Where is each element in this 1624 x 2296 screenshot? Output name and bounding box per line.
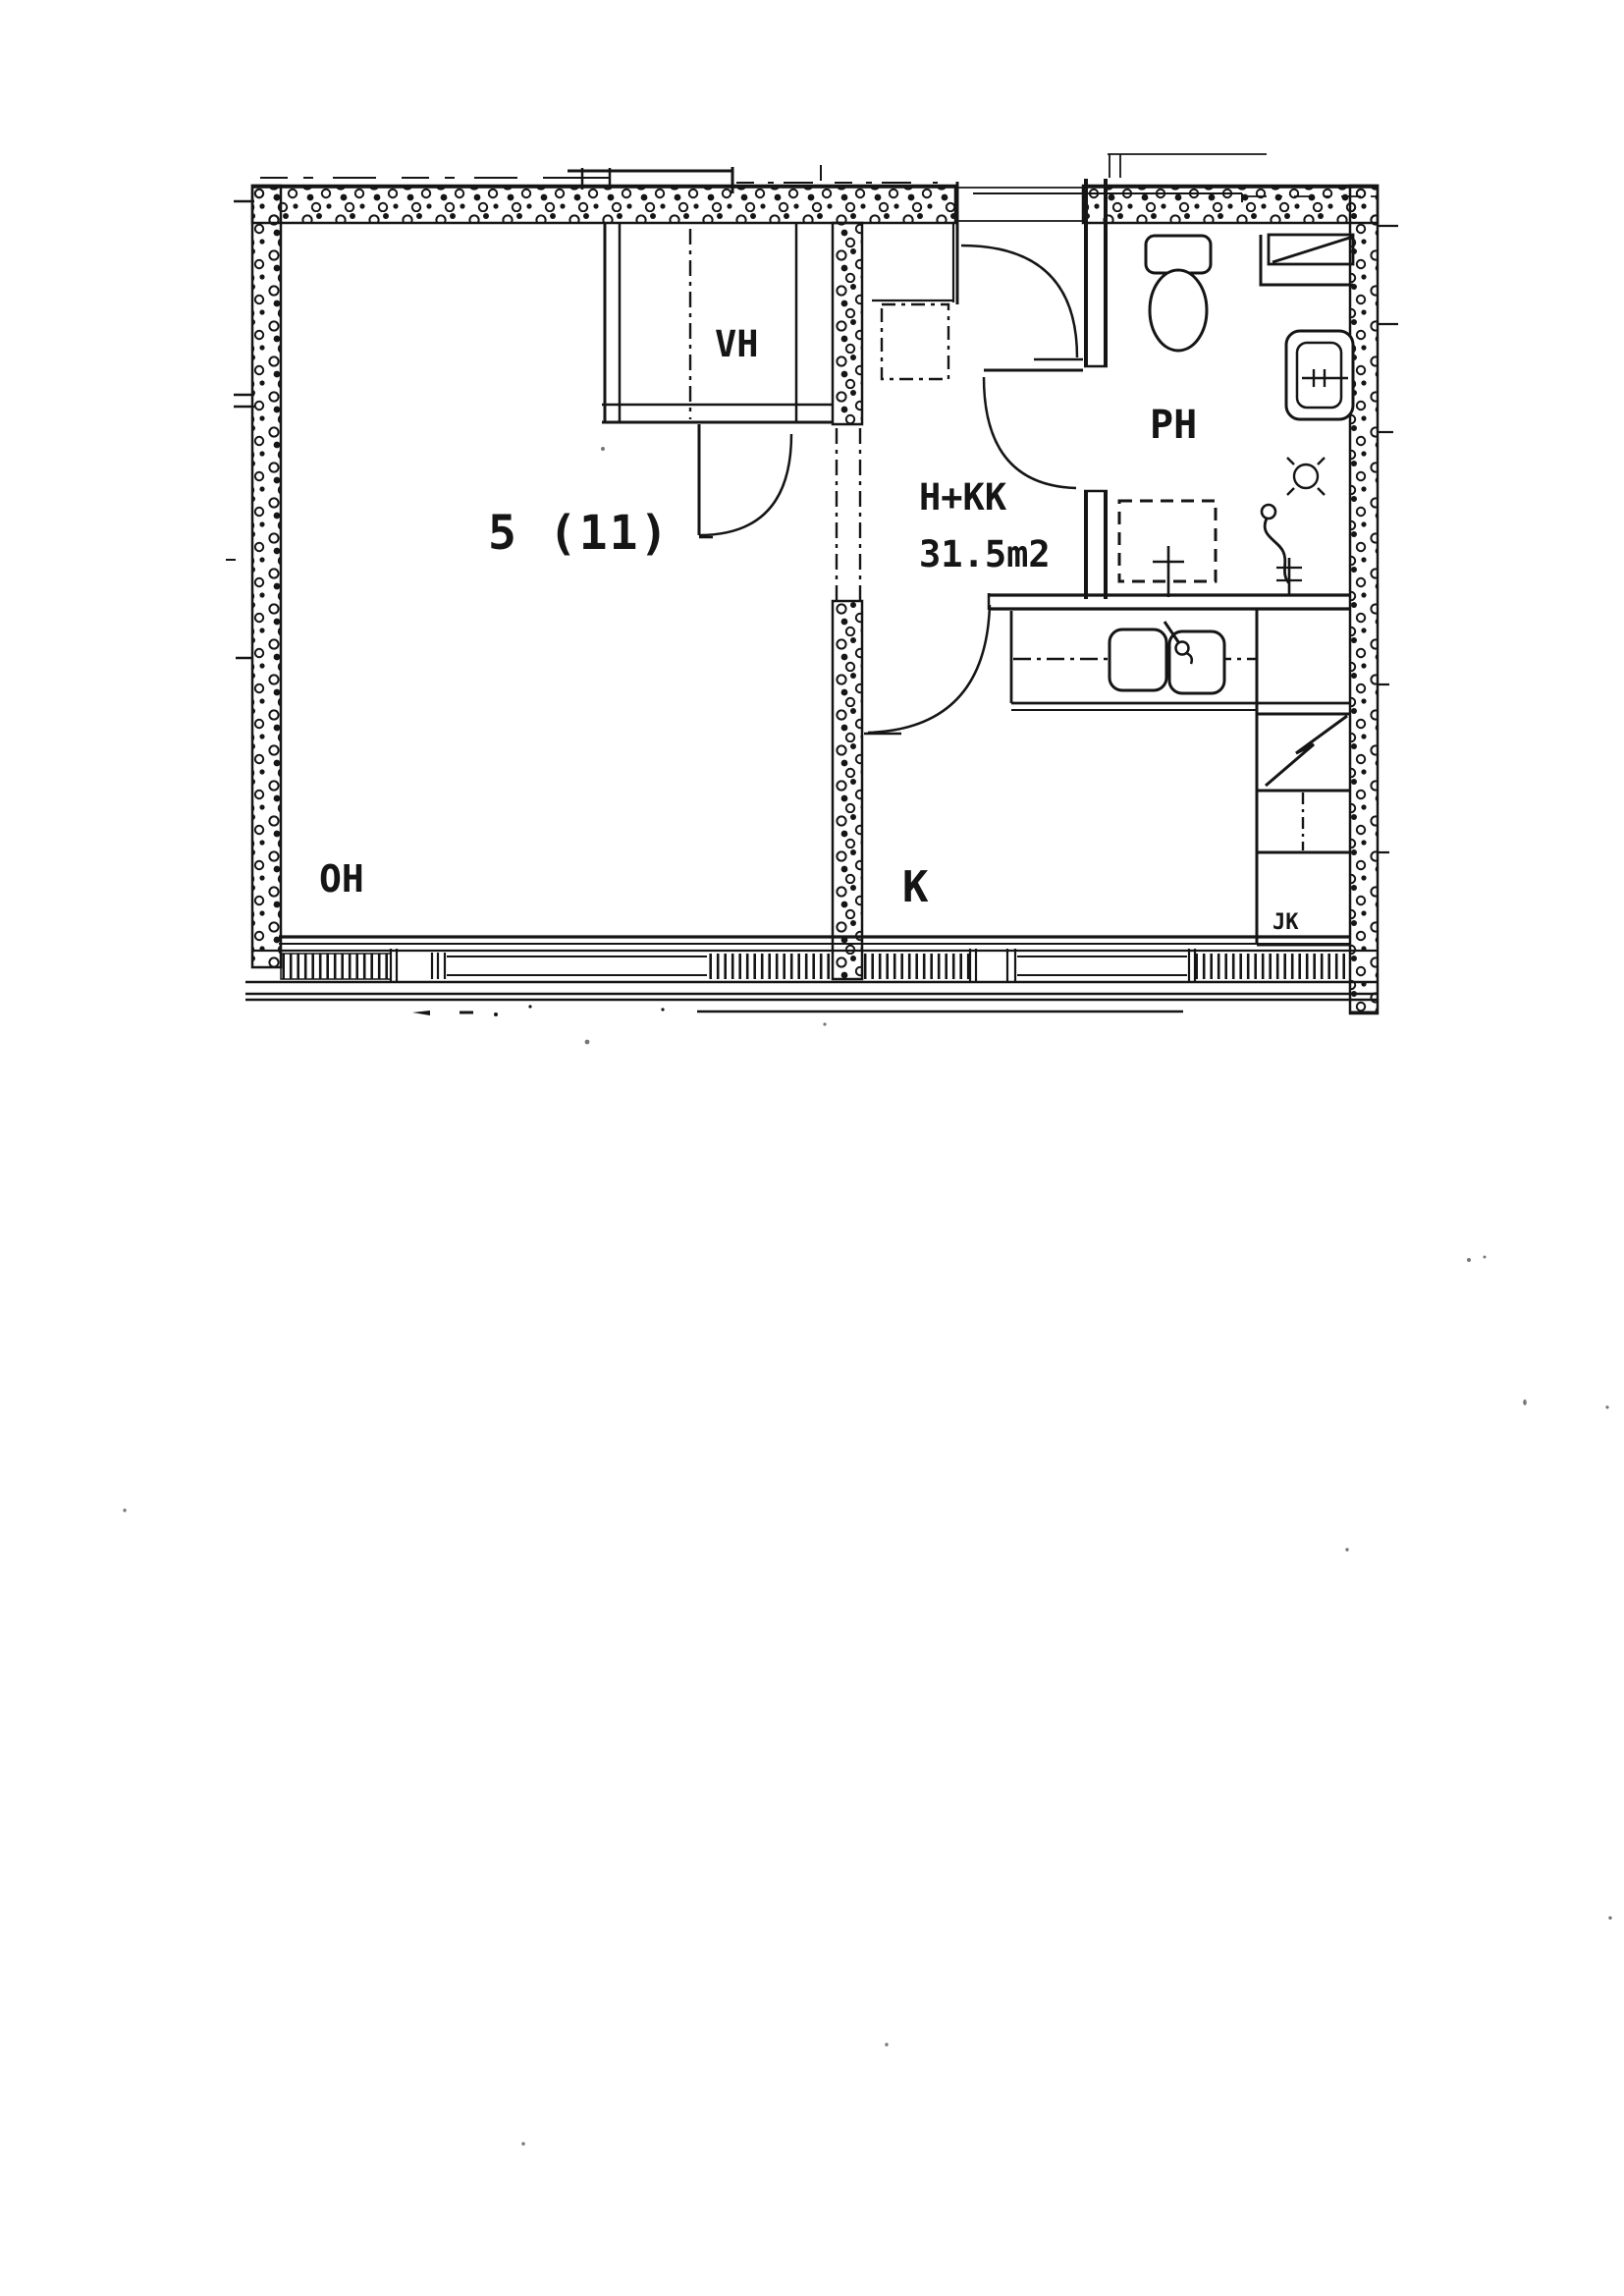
reserved-cabinet-dashdot [882, 304, 948, 379]
window-band [245, 937, 1378, 1016]
hall-partition-wall [1084, 179, 1108, 599]
window-band-icon [281, 954, 391, 979]
double-sink-icon [1110, 629, 1166, 690]
left-exterior-wall [252, 186, 281, 967]
floor-plan-drawing: 5 (11) H+KK 31.5m2 VH PH OH K JK [0, 0, 1624, 2296]
scanned-floor-plan-page: 5 (11) H+KK 31.5m2 VH PH OH K JK [0, 0, 1624, 2296]
vh-closet [602, 223, 833, 537]
kitchen-fittings [864, 593, 1350, 945]
balcony-edge-dashes [412, 1005, 665, 1016]
room-label-oh: OH [319, 857, 364, 901]
unit-area-label: 31.5m2 [919, 533, 1051, 575]
top-exterior-wall-right [1083, 186, 1378, 223]
door-swing-icon [961, 246, 1077, 357]
room-label-vh: VH [715, 323, 759, 365]
window-band-icon [862, 954, 970, 979]
unit-number-label: 5 (11) [488, 506, 670, 561]
door-swing-icon [868, 605, 990, 733]
window-band-icon [709, 954, 833, 979]
walls [252, 186, 1378, 1013]
toilet-icon [1150, 270, 1207, 351]
right-exterior-wall [1350, 186, 1378, 1013]
scan-specks [123, 447, 1611, 2146]
unit-type-label: H+KK [919, 476, 1007, 519]
room-label-k: K [902, 862, 929, 912]
water-heater-icon [1262, 505, 1302, 596]
interior-wall-lower [833, 601, 862, 979]
door-swing-icon [699, 434, 791, 535]
top-exterior-wall-left [252, 186, 955, 223]
electric-cabinet-icon [1266, 716, 1347, 786]
toilet-icon [1146, 236, 1211, 273]
door-swing-icon [984, 377, 1076, 488]
floor-drain-icon [1287, 458, 1325, 495]
washbasin-icon [1297, 343, 1341, 408]
shower-corner-icon [1272, 237, 1353, 262]
exterior-lines [226, 154, 1398, 852]
room-label-ph: PH [1150, 403, 1197, 448]
interior-wall-upper [833, 223, 862, 424]
entry-area [872, 182, 1083, 488]
room-label-jk: JK [1272, 910, 1299, 935]
window-band-icon [1194, 954, 1349, 979]
